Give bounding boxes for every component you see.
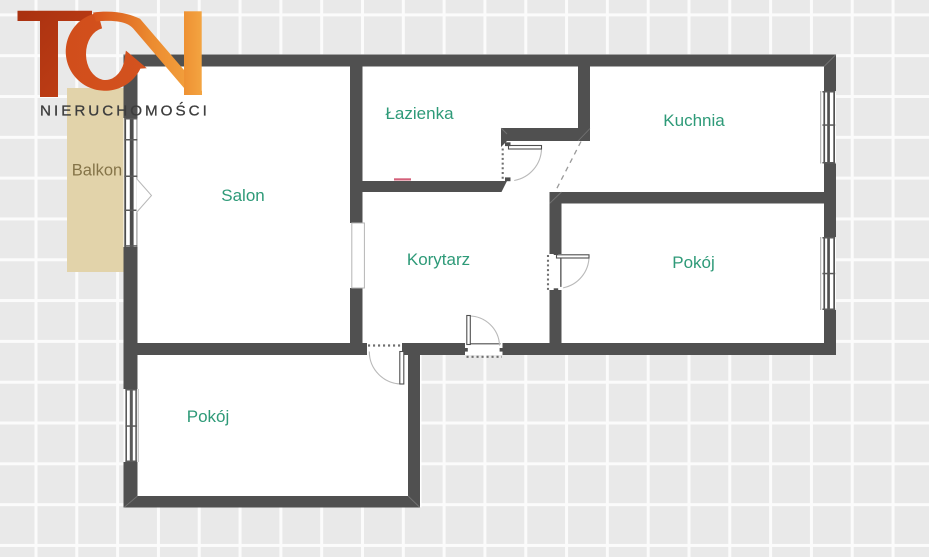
svg-text:NIERUCHOMOŚCI: NIERUCHOMOŚCI: [40, 102, 210, 120]
